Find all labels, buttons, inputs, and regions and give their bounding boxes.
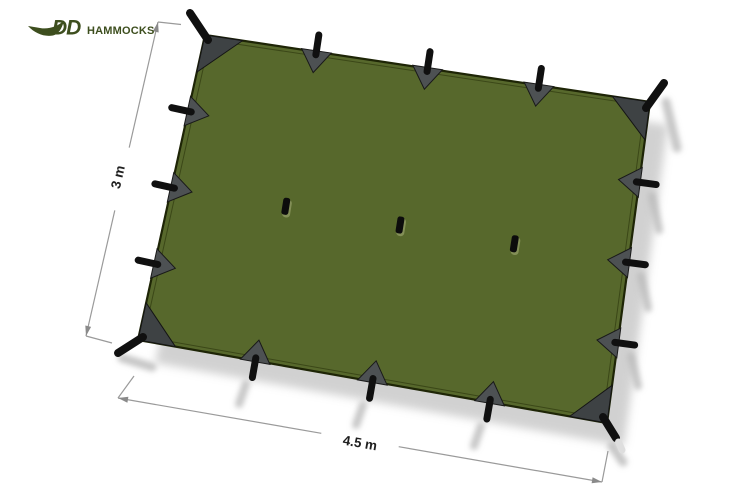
corner-strap-bottom-left xyxy=(118,337,143,353)
strap-shadow xyxy=(239,384,246,404)
height-dimension-line xyxy=(86,210,115,336)
strap-shadow xyxy=(666,102,677,148)
dimension-tick xyxy=(602,451,608,482)
dimension-tick xyxy=(158,22,181,25)
height-dimension-line xyxy=(129,22,158,148)
width-dimension-label: 4.5 m xyxy=(342,433,379,454)
height-dimension-label: 3 m xyxy=(108,164,128,190)
dimension-tick xyxy=(86,336,112,343)
logo-dd-text: DD xyxy=(52,17,81,40)
corner-strap-top-right xyxy=(646,83,664,108)
logo-hammocks-text: HAMMOCKS xyxy=(87,25,155,37)
width-dimension-line xyxy=(399,447,602,482)
strap-shadow xyxy=(122,358,152,367)
width-dimension-line xyxy=(118,398,321,433)
strap-shadow xyxy=(474,426,481,446)
strap-shadow xyxy=(356,405,363,425)
product-diagram: 3 m 4.5 m DD HAMMOCKS xyxy=(0,0,750,500)
dimension-arrow xyxy=(118,397,128,403)
tarp-diagram-canvas: 3 m 4.5 m DD HAMMOCKS xyxy=(0,0,750,500)
corner-strap-top-left xyxy=(190,13,208,40)
dimension-arrow xyxy=(592,477,602,483)
dimension-arrow xyxy=(85,326,91,337)
logo: DD HAMMOCKS xyxy=(28,17,155,40)
corner-strap-tip xyxy=(619,442,623,450)
dimension-tick xyxy=(118,376,134,398)
